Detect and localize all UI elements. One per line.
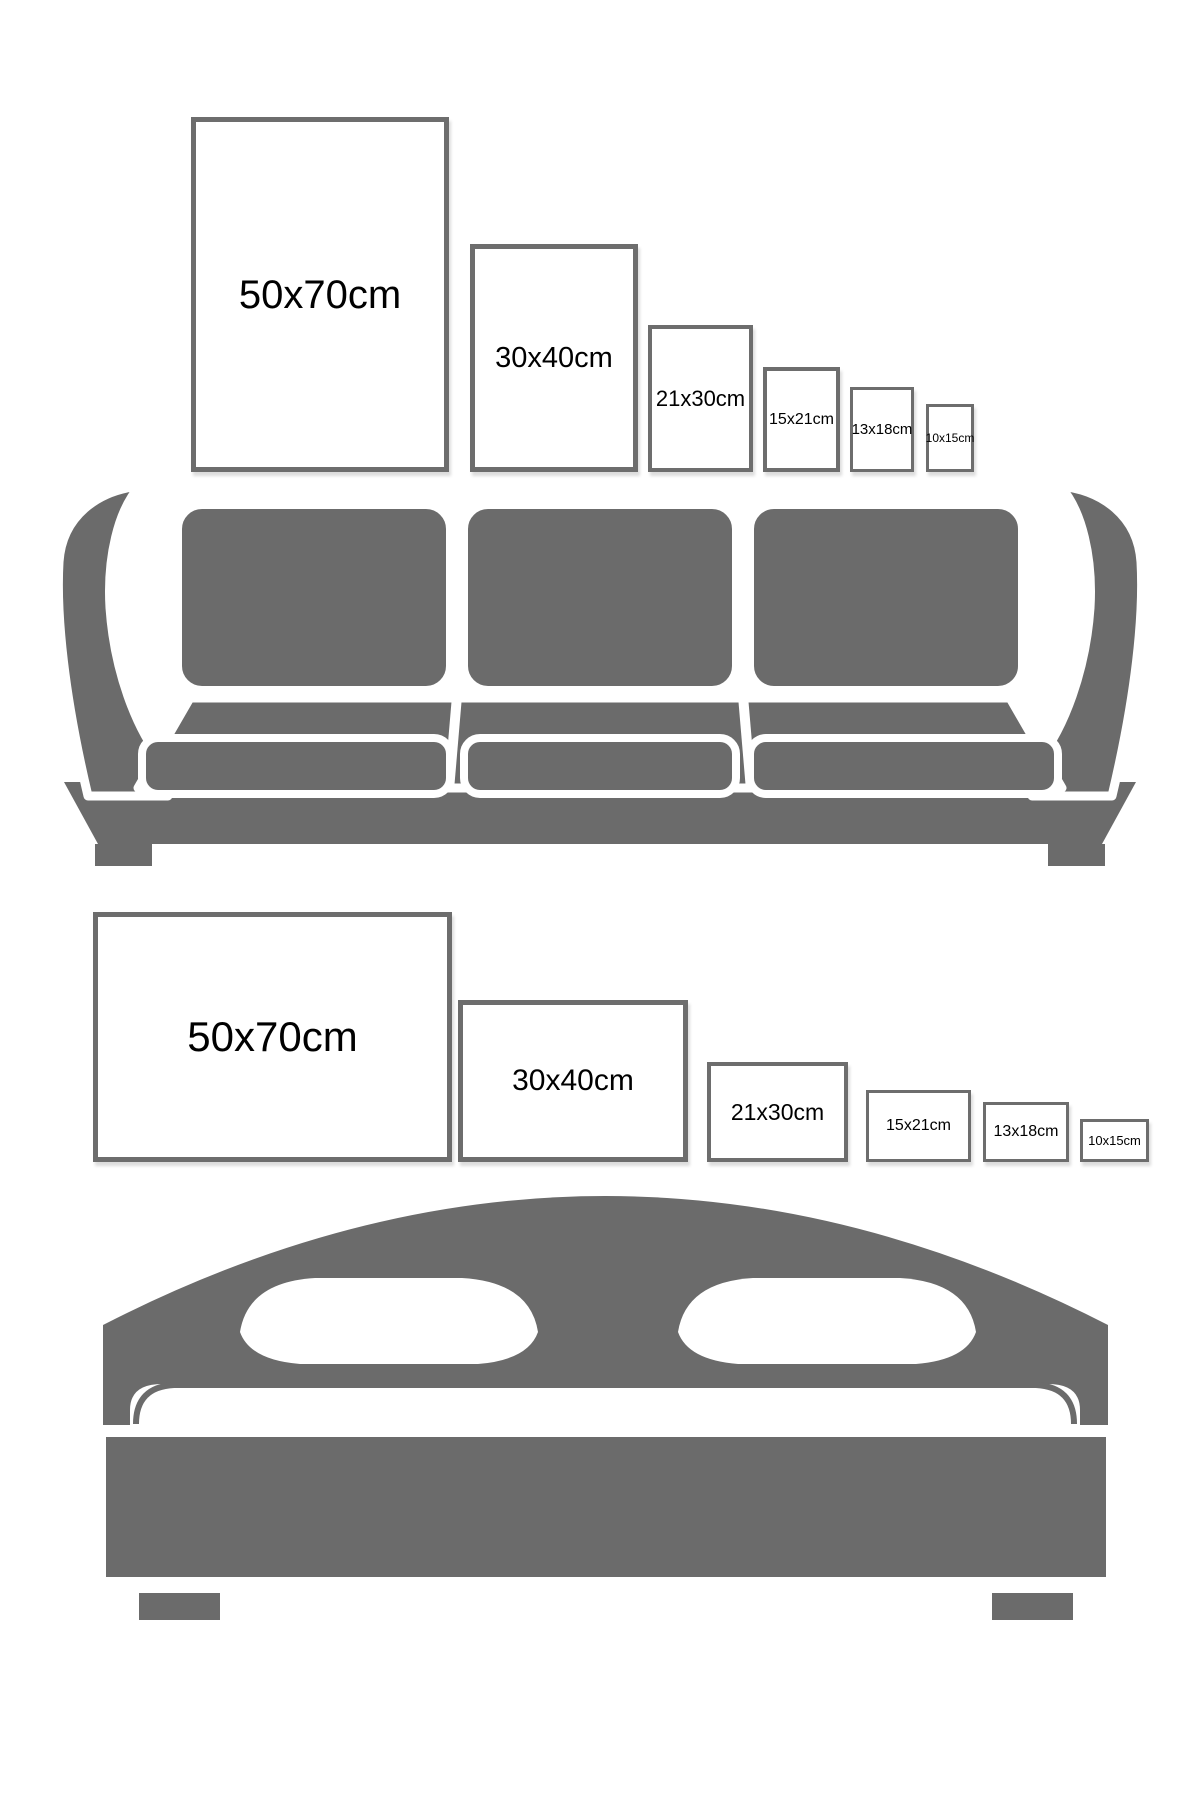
- bed-mattress: [130, 1384, 1080, 1437]
- sofa-seat-cushion: [464, 738, 736, 794]
- frame-size-label: 30x40cm: [512, 1066, 634, 1096]
- sofa-foot-left: [95, 844, 152, 866]
- frame-size-label: 15x21cm: [769, 412, 834, 428]
- sofa-back-cushion: [178, 505, 450, 690]
- frame-landscape-10x15: 10x15cm: [1080, 1119, 1149, 1162]
- frame-size-label: 21x30cm: [731, 1101, 824, 1124]
- frame-landscape-21x30: 21x30cm: [707, 1062, 848, 1162]
- bed-pillow-right: [678, 1278, 976, 1364]
- frame-size-label: 10x15cm: [1088, 1134, 1141, 1147]
- frame-size-label: 50x70cm: [187, 1016, 357, 1058]
- sofa-back-cushion: [464, 505, 736, 690]
- bed-foot-right: [992, 1593, 1073, 1620]
- sofa-seat-cushion: [142, 738, 450, 794]
- frame-portrait-15x21: 15x21cm: [763, 367, 840, 472]
- bed-illustration: [0, 1170, 1200, 1640]
- size-guide-infographic: 50x70cm 30x40cm 21x30cm 15x21cm 13x18cm …: [0, 0, 1200, 1800]
- frame-landscape-13x18: 13x18cm: [983, 1102, 1069, 1162]
- frame-size-label: 10x15cm: [926, 432, 975, 444]
- sofa-foot-right: [1048, 844, 1105, 866]
- sofa-back-cushion: [750, 505, 1022, 690]
- frame-landscape-15x21: 15x21cm: [866, 1090, 971, 1162]
- frame-portrait-10x15: 10x15cm: [926, 404, 974, 472]
- bed-pillow-left: [240, 1278, 538, 1364]
- frame-portrait-21x30: 21x30cm: [648, 325, 753, 472]
- frame-landscape-30x40: 30x40cm: [458, 1000, 688, 1162]
- frame-size-label: 50x70cm: [239, 275, 401, 315]
- bed-foot-left: [139, 1593, 220, 1620]
- sofa-illustration: [0, 470, 1200, 870]
- frame-portrait-13x18: 13x18cm: [850, 387, 914, 472]
- frame-size-label: 15x21cm: [886, 1118, 951, 1134]
- frame-size-label: 13x18cm: [852, 422, 913, 437]
- frame-landscape-50x70: 50x70cm: [93, 912, 452, 1162]
- frame-size-label: 13x18cm: [994, 1124, 1059, 1140]
- frame-portrait-30x40: 30x40cm: [470, 244, 638, 472]
- frame-portrait-50x70: 50x70cm: [191, 117, 449, 472]
- frame-size-label: 21x30cm: [656, 388, 745, 410]
- frame-size-label: 30x40cm: [495, 344, 613, 373]
- sofa-seat-cushion: [750, 738, 1058, 794]
- bed-base: [106, 1437, 1106, 1577]
